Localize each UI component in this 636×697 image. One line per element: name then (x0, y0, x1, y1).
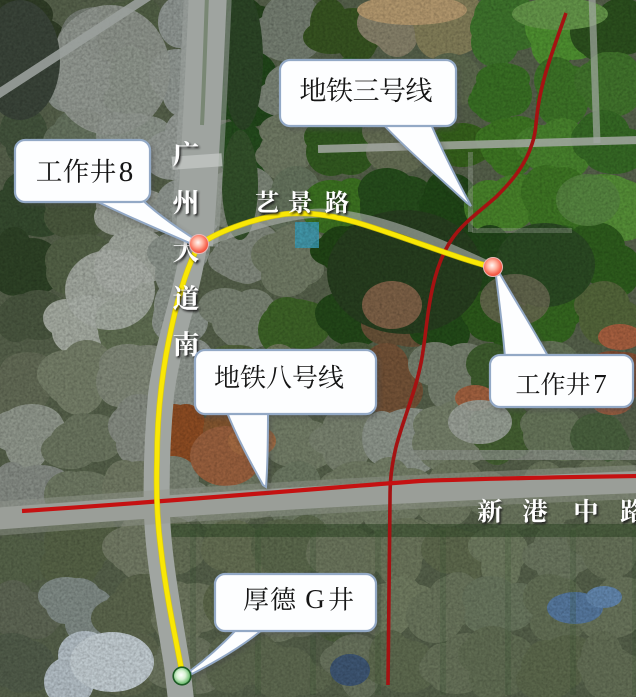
svg-text:G: G (305, 584, 325, 614)
svg-text:8: 8 (119, 156, 134, 188)
svg-text:7: 7 (593, 369, 607, 399)
